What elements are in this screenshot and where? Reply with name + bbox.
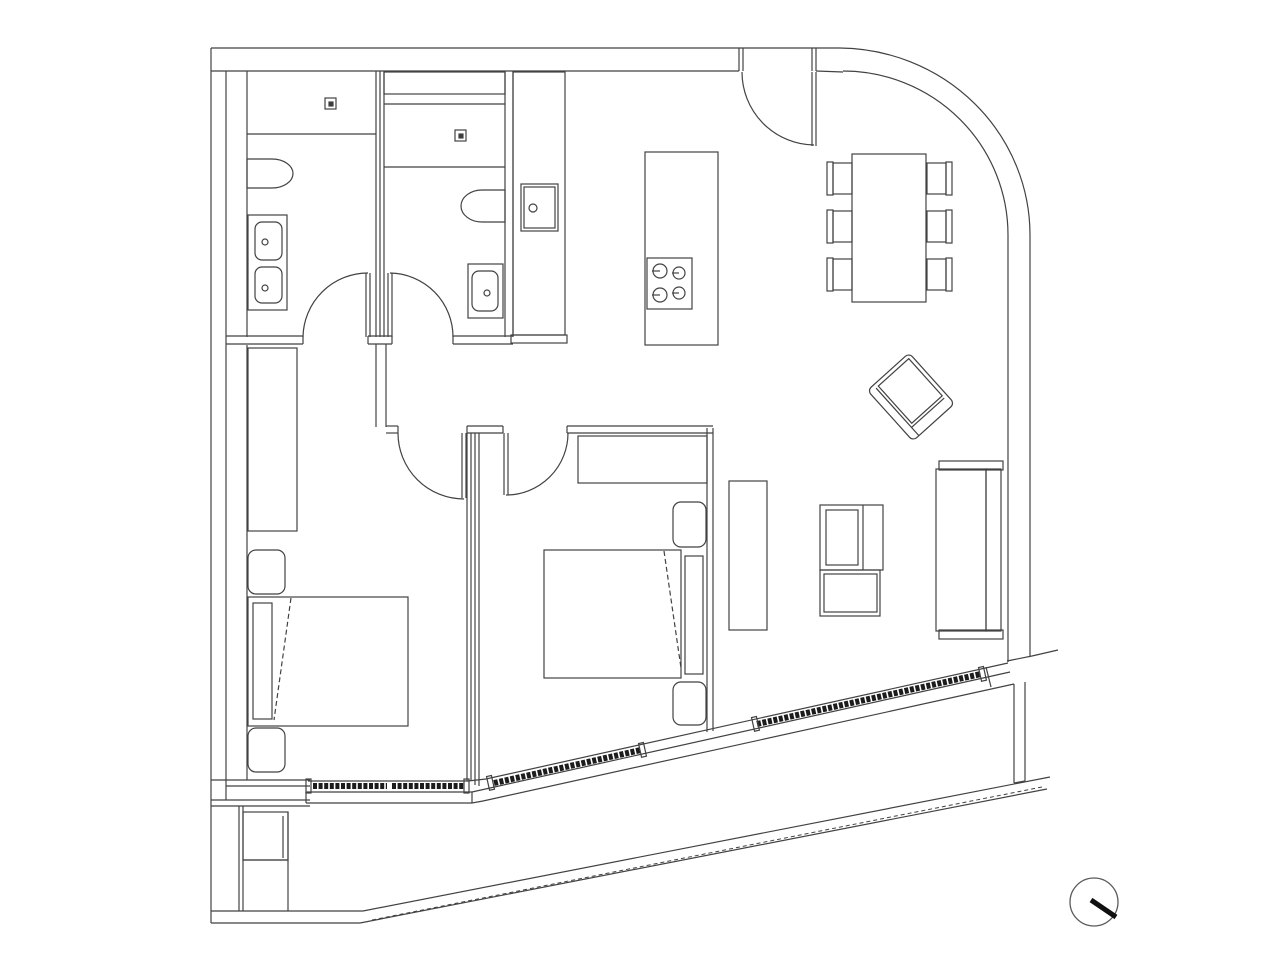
bed1-headboard [253, 603, 272, 719]
bed2-nightstand-bottom [673, 682, 706, 725]
kitchen-counter-base [511, 335, 567, 343]
chair-right-2-back [946, 210, 952, 243]
bath1-faucet-1 [262, 239, 268, 245]
dining-set [827, 154, 952, 302]
chair-left-3-seat [833, 259, 852, 290]
bed1-nightstand-top [248, 550, 285, 594]
bedroom1-door-swing-arc [398, 433, 464, 499]
side-unit-bottom-outer [820, 570, 880, 616]
bath2-faucet [484, 290, 490, 296]
bath1-basin-2 [255, 267, 282, 303]
cooktop [647, 258, 692, 309]
armchair-backrest [876, 388, 919, 436]
chair-left-2-back [827, 210, 833, 243]
kitchen-sink-outer [521, 184, 558, 231]
chair-right-1-back [946, 162, 952, 195]
bath2-toilet [461, 190, 505, 222]
bedroom1-furniture [248, 348, 408, 772]
north-indicator-needle [1091, 900, 1116, 917]
tv-sideboard [729, 481, 767, 630]
bath2-shower-drain-core [459, 134, 463, 138]
window-outer-face [483, 684, 1014, 801]
chair-right-3-seat [927, 259, 946, 290]
sofa-back [986, 469, 1001, 631]
bed2-cover-fold [664, 551, 681, 668]
right-wall-stub [1032, 650, 1058, 656]
side-unit-top-inner [826, 510, 858, 565]
terrace-edge-diagonal-b [360, 789, 1047, 923]
window-corner-connector-b [472, 788, 490, 792]
entry-door-swing-arc [742, 72, 814, 145]
right-wall-endcap [1007, 656, 1032, 661]
terrace-edge-diagonal-a [363, 777, 1050, 911]
bathroom1-fixtures [247, 98, 376, 310]
chair-right-2-seat [927, 211, 946, 242]
terrace-hatch-line [372, 787, 1042, 920]
window-corner-connector-c [472, 801, 483, 803]
windows [306, 663, 1014, 803]
angled-window-frame-top [486, 663, 1008, 779]
angled-window-frame-bottom [490, 672, 1010, 788]
bath1-door-swing-arc [303, 273, 368, 337]
bed2-window-glazing [494, 750, 641, 783]
sofa-seat [936, 469, 986, 631]
chair-left-1-seat [833, 163, 852, 194]
armchair-armrest [912, 398, 945, 427]
chair-left-2-seat [833, 211, 852, 242]
bed2-dresser [578, 436, 707, 483]
bath1-vanity-counter [248, 215, 287, 310]
kitchen [511, 72, 718, 345]
chair-right-1-seat [927, 163, 946, 194]
north-indicator [1070, 878, 1118, 926]
bath1-shower-drain-core [329, 102, 333, 106]
corner-curve-outer [840, 48, 1030, 235]
bath1-basin-1 [255, 222, 282, 260]
kitchen-faucet [529, 204, 537, 212]
bed2-nightstand-top [673, 502, 706, 547]
chair-left-1-back [827, 162, 833, 195]
bath2-closet-shelf [384, 72, 505, 94]
side-unit-top-outer [820, 505, 883, 570]
kitchen-island [645, 152, 718, 345]
bed1-nightstand-bottom [248, 728, 285, 772]
living-furniture [729, 353, 1003, 639]
floor-plan-canvas [0, 0, 1280, 960]
bath1-faucet-2 [262, 285, 268, 291]
bathroom2-fixtures [384, 72, 505, 318]
terrace-storage-box [243, 812, 288, 860]
top-wall-inner-right [816, 71, 843, 72]
bed2-headboard [685, 556, 703, 674]
bed2-bed [544, 550, 681, 678]
floor-plan-svg [0, 0, 1280, 960]
bed1-wardrobe [248, 348, 297, 531]
bath1-toilet [247, 159, 293, 188]
chair-right-3-back [946, 258, 952, 291]
side-unit-bottom-inner [824, 574, 877, 612]
dining-table [852, 154, 926, 302]
bath2-door-swing-arc [390, 273, 453, 337]
chair-left-3-back [827, 258, 833, 291]
bedroom2-furniture [544, 436, 707, 725]
bedroom2-door-swing-arc [506, 433, 568, 495]
bed1-cover-fold [274, 598, 291, 720]
